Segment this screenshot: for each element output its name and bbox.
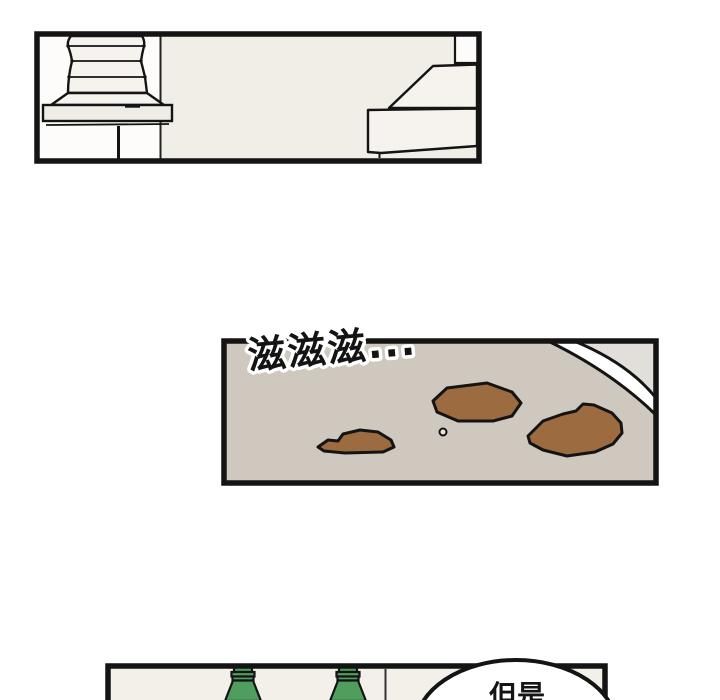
panel-kitchen xyxy=(37,34,479,161)
pedestal-underline xyxy=(46,124,169,125)
panel-grill: 滋滋滋... xyxy=(224,319,656,483)
counter-box xyxy=(368,109,477,154)
pedestal-slab xyxy=(43,105,172,121)
pedestal-flare xyxy=(51,93,164,105)
pillar-baluster xyxy=(68,36,147,93)
oil-droplet xyxy=(440,429,447,436)
comic-artwork: 滋滋滋... xyxy=(0,0,720,700)
speech-bubble-text: 但是 xyxy=(489,679,545,700)
corner-cabinet-fill xyxy=(455,36,477,63)
comic-page: 滋滋滋... xyxy=(0,0,720,700)
panel-table: 但是 xyxy=(108,660,617,700)
